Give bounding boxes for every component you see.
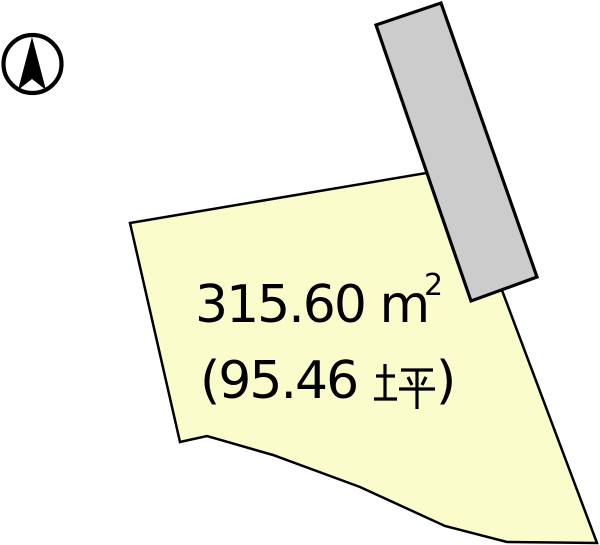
area-tsubo-close-text: ) bbox=[436, 351, 454, 411]
area-tsubo-open-text: (95.46 bbox=[200, 351, 357, 411]
area-sqm-superscript: 2 bbox=[424, 268, 443, 303]
compass-needle bbox=[18, 37, 46, 90]
north-arrow-icon bbox=[4, 35, 62, 93]
plot-diagram-svg: 315.60 m 2 (95.46 ) bbox=[0, 0, 600, 545]
land-plot-map: 315.60 m 2 (95.46 ) bbox=[0, 0, 600, 545]
area-sqm-label: 315.60 m 2 bbox=[195, 268, 443, 335]
area-sqm-text: 315.60 m bbox=[195, 275, 428, 335]
